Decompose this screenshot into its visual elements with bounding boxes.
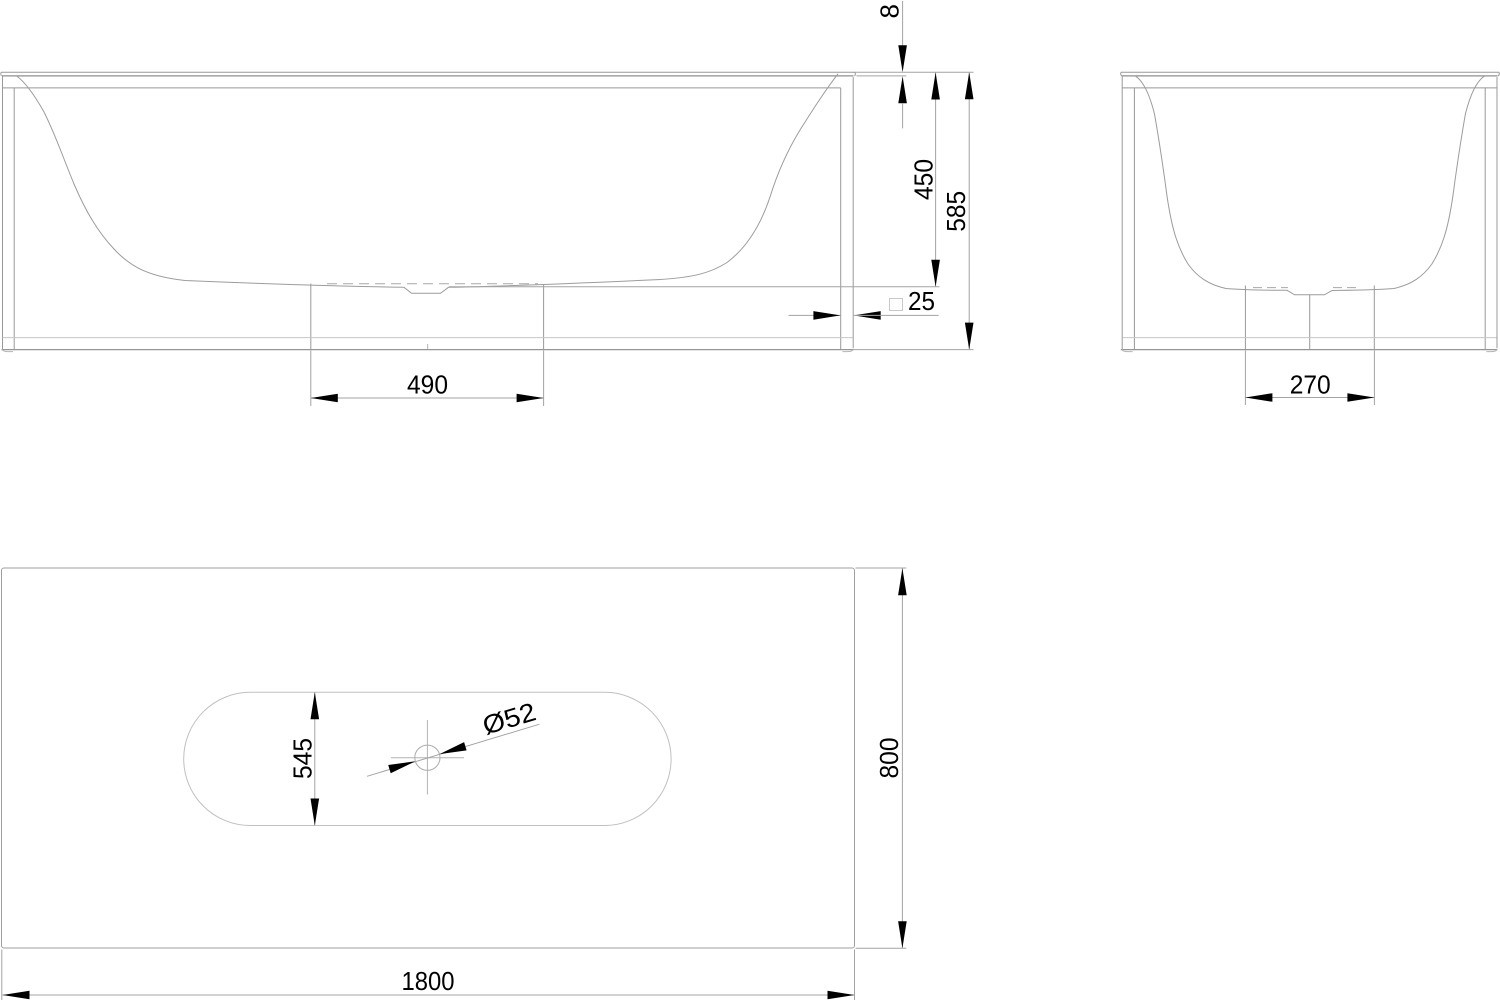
svg-text:Ø52: Ø52 <box>479 696 539 740</box>
svg-text:585: 585 <box>941 191 971 232</box>
svg-text:800: 800 <box>874 738 904 779</box>
svg-text:8: 8 <box>874 4 904 18</box>
svg-text:1800: 1800 <box>402 966 455 996</box>
svg-text:25: 25 <box>908 286 935 316</box>
svg-text:450: 450 <box>909 159 939 200</box>
svg-text:545: 545 <box>288 738 318 779</box>
svg-text:490: 490 <box>407 370 448 400</box>
svg-text:270: 270 <box>1290 370 1331 400</box>
